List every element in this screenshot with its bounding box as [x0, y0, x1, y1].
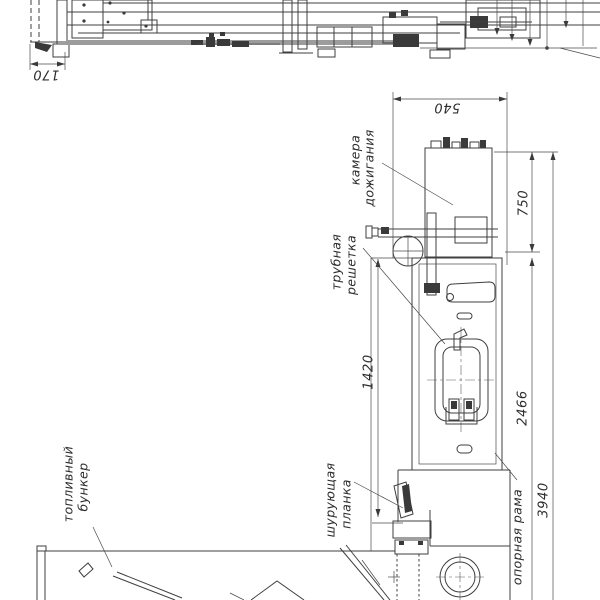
- technical-drawing: 170 540 750 1420: [0, 0, 600, 600]
- dim-3940: 3940: [537, 482, 552, 517]
- fuel-bunker-view: [37, 545, 400, 600]
- drawing-sheet: 170 540 750 1420: [0, 0, 600, 600]
- part-labels: камера дожигания трубная решетка топливн…: [61, 129, 525, 585]
- label-support-frame-line1: опорная рама: [510, 489, 525, 585]
- label-stoker-bar-line1: шурующая: [323, 462, 338, 537]
- top-view: [30, 0, 600, 58]
- label-combustion-chamber-line2: дожигания: [362, 129, 377, 207]
- dimensions: 170 540 750 1420: [30, 44, 558, 600]
- side-view: [366, 137, 510, 600]
- dimension-total-height: 3940: [537, 152, 556, 600]
- dim-2466: 2466: [516, 390, 531, 425]
- label-tube-grate-line2: решетка: [344, 235, 359, 296]
- dim-540: 540: [434, 100, 461, 115]
- label-fuel-bunker: топливный бункер: [61, 446, 113, 567]
- label-stoker-bar-line2: планка: [339, 479, 354, 529]
- dimension-chamber-height: 750: [494, 152, 558, 252]
- dim-750: 750: [517, 190, 532, 217]
- dim-1420: 1420: [362, 354, 377, 389]
- dimension-chamber-width: 540: [393, 92, 507, 265]
- label-fuel-bunker-line2: бункер: [76, 463, 91, 512]
- label-tube-grate-line1: трубная: [329, 234, 344, 291]
- dimension-grate-length: 1420: [362, 258, 413, 523]
- dim-170: 170: [33, 67, 60, 82]
- label-combustion-chamber-line1: камера: [348, 135, 363, 185]
- label-stoker-bar: шурующая планка: [323, 462, 404, 537]
- label-fuel-bunker-line1: топливный: [61, 446, 76, 522]
